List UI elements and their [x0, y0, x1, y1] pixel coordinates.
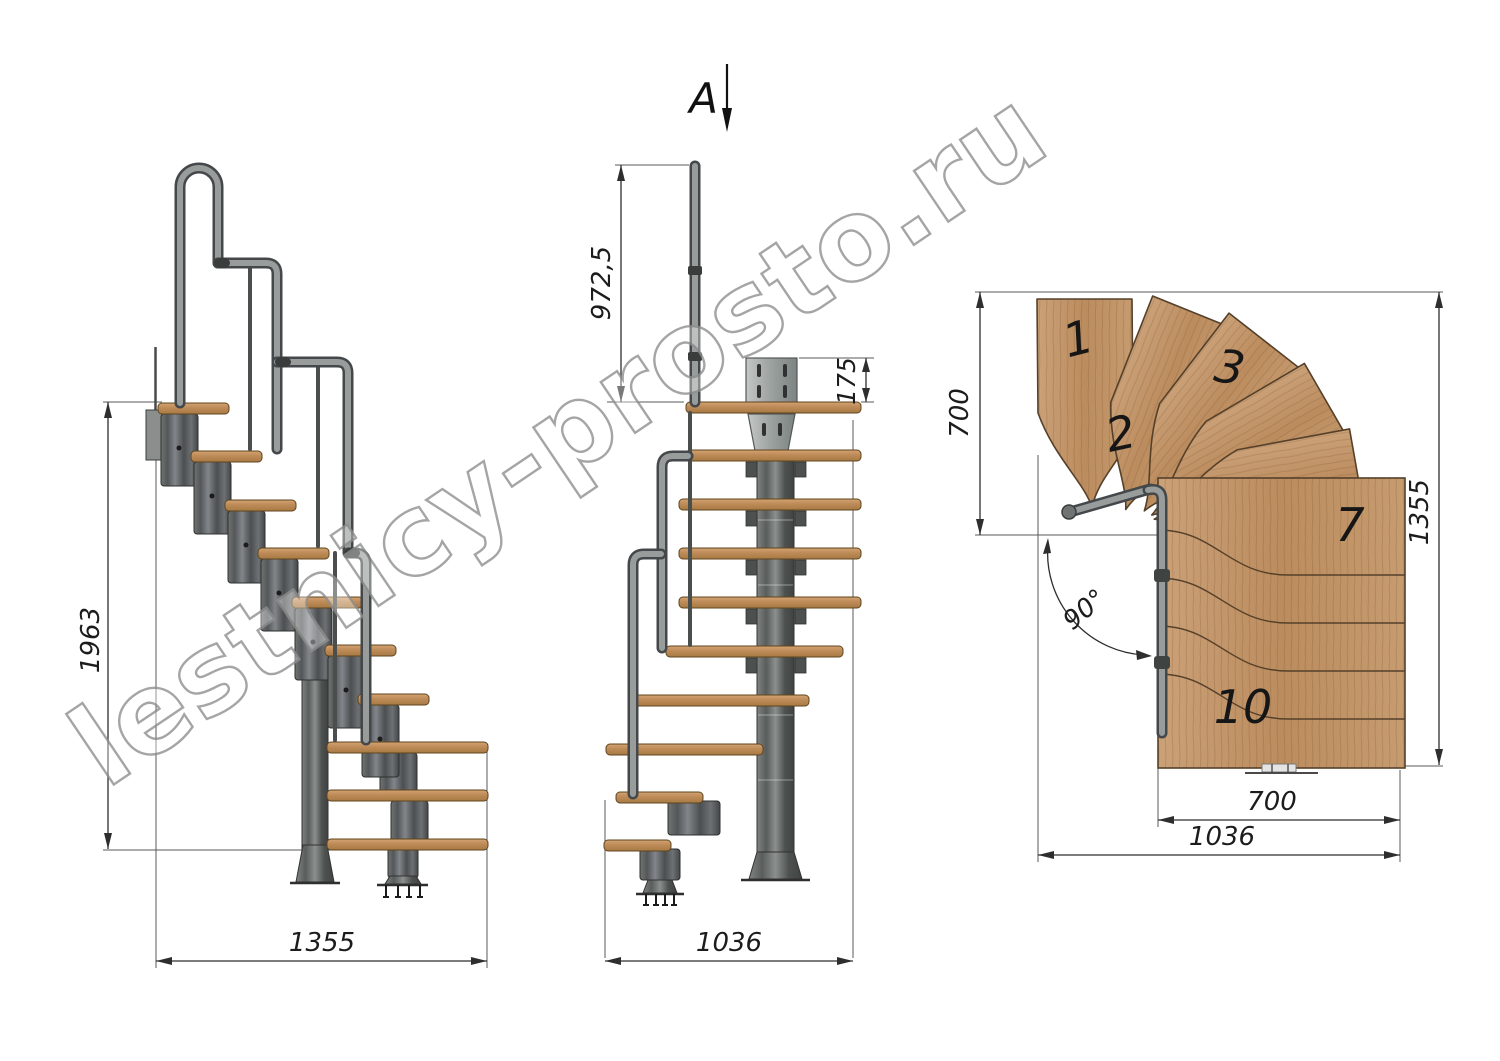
dim-total-height: 1963: [76, 607, 106, 673]
watermark-text: lestnicy-prosto.ru: [48, 65, 1069, 812]
dim-rail-height: 972,5: [587, 246, 617, 320]
anchor-bolts: [643, 894, 677, 905]
top-plan-view: 1 2 3 7 10 700 90° 1355 700: [945, 292, 1443, 862]
dim-plate-height: 175: [832, 357, 861, 405]
dim-side-width: 1355: [289, 928, 355, 958]
tread-number-7: 7: [1335, 498, 1364, 552]
dim-upper-depth: 700: [945, 388, 975, 438]
section-marker: A: [686, 64, 732, 132]
section-arrow: [722, 108, 732, 132]
rail-joint: [1154, 569, 1170, 582]
front-treads: [604, 402, 861, 851]
section-label: A: [686, 74, 718, 123]
front-lower-modules: [636, 801, 720, 905]
technical-drawing-page: 1963 1355: [0, 0, 1500, 1061]
staircase-drawing: 1963 1355: [0, 0, 1500, 1061]
anchor-bolts: [383, 885, 423, 897]
plan-straight-flight: [1158, 478, 1405, 768]
rail-clamp: [275, 357, 291, 368]
rail-clamp: [214, 258, 230, 269]
dim-plan-height: 1355: [1405, 479, 1435, 545]
dim-plan-total-width: 1036: [1189, 822, 1255, 852]
wall-bracket: [146, 410, 162, 460]
rail-joint: [1154, 656, 1170, 669]
dim-lower-width: 700: [1247, 787, 1297, 817]
dim-turn-angle: 90°: [1058, 584, 1113, 637]
tread-number-10: 10: [1214, 680, 1273, 734]
dim-front-width: 1036: [696, 928, 762, 958]
rail-end-cap: [1062, 505, 1076, 519]
